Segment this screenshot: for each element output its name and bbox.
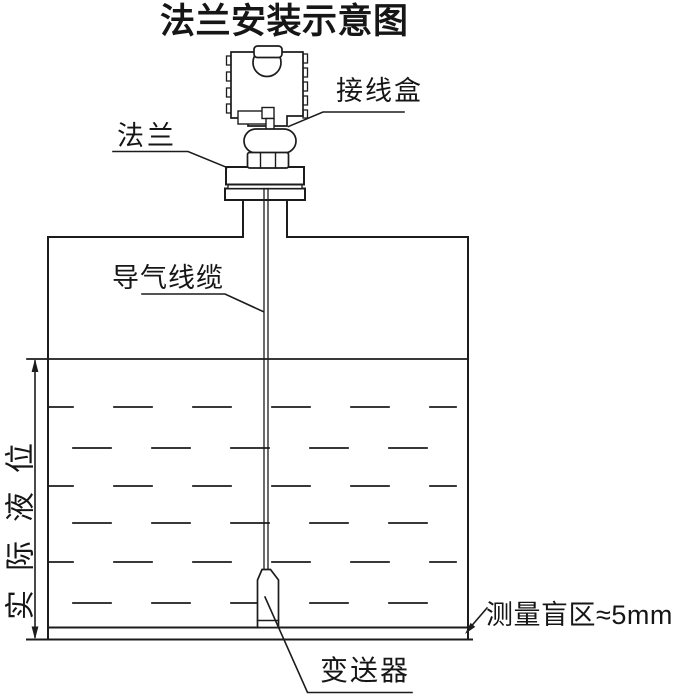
neck-dome (244, 129, 296, 153)
terminal-stem (266, 119, 274, 130)
nozzle-flange-band (225, 189, 305, 201)
transmitter-label: 变送器 (320, 656, 410, 685)
transmitter-head (227, 46, 308, 168)
flange-installation-diagram: 法兰安装示意图 接线盒 法兰 导气线缆 实际液位 变送器 测量盲区≈5mm (0, 0, 700, 700)
terminal-connector (262, 108, 274, 119)
hex-nut (248, 153, 289, 169)
dimension-arrow-up (32, 359, 39, 372)
leader-flange (113, 152, 227, 168)
leader-air-cable (142, 294, 263, 312)
actual-level-label: 实际液位 (5, 424, 37, 620)
liquid (27, 359, 468, 603)
flange-plate (226, 167, 304, 185)
junction-box-label: 接线盒 (336, 77, 423, 105)
tank-outline (27, 237, 472, 640)
page-title: 法兰安装示意图 (160, 4, 409, 41)
dimension-arrow-down (32, 627, 39, 640)
housing-top-cap (254, 46, 282, 58)
air-cable-label: 导气线缆 (112, 264, 224, 292)
nozzle-and-flange (225, 167, 305, 237)
flange-label: 法兰 (117, 122, 177, 150)
blind-zone-label: 测量盲区≈5mm (486, 601, 673, 629)
liquid-dashes (48, 407, 456, 603)
air-guide-cable (264, 189, 268, 570)
